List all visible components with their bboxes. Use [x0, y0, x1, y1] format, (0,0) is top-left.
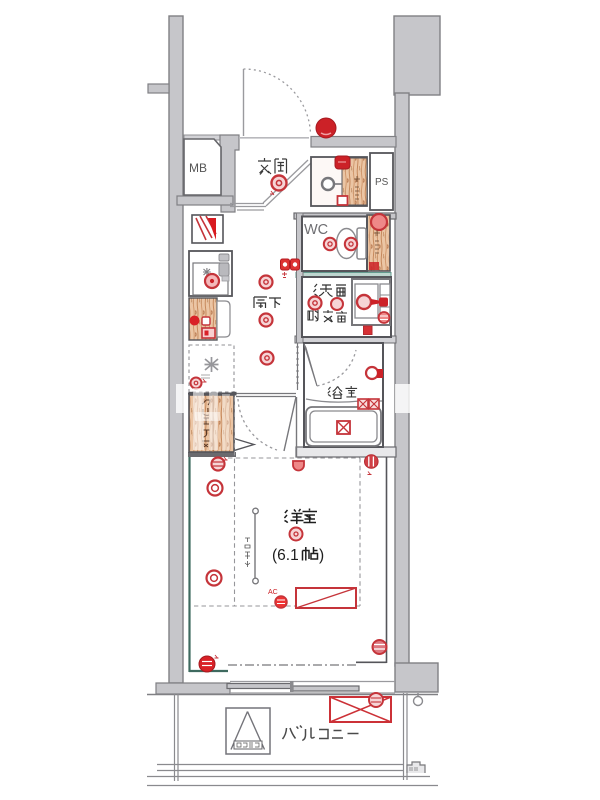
svg-text:PS: PS: [375, 177, 389, 188]
svg-text:MB: MB: [189, 161, 207, 175]
svg-text:AC: AC: [268, 589, 278, 596]
svg-text:WC: WC: [304, 222, 328, 238]
svg-text:): ): [319, 547, 324, 564]
svg-text:(6.1: (6.1: [272, 547, 299, 564]
